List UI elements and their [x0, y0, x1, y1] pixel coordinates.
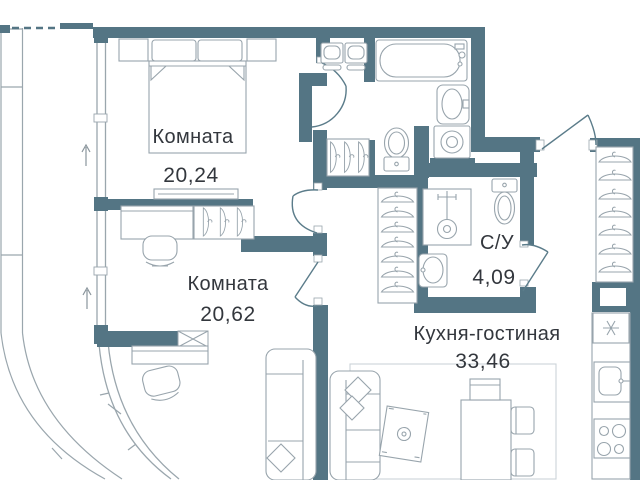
entrance-door-arc — [542, 115, 596, 149]
bathroom-door-arc — [312, 63, 346, 127]
vanity-sink-2 — [345, 43, 367, 70]
bathtub — [376, 40, 467, 81]
work-desk — [132, 346, 208, 364]
desk — [121, 206, 193, 239]
dining-table — [461, 379, 534, 480]
floor-plan-svg: Комната 20,24 Комната 20,62 С/У 4,09 Кух… — [0, 0, 640, 480]
bed-pillow-right — [198, 40, 242, 61]
kitchen-counter — [592, 313, 630, 479]
fridge — [593, 313, 629, 343]
hallway-wardrobe — [378, 188, 417, 303]
sofa-left — [266, 349, 316, 480]
bedroom2-label: Комната — [187, 273, 269, 295]
stove — [594, 419, 630, 458]
nightstand-left — [119, 39, 148, 61]
toilet-2 — [492, 179, 517, 224]
floor-plan-page: Комната 20,24 Комната 20,62 С/У 4,09 Кух… — [0, 0, 640, 480]
office-chair — [143, 236, 177, 266]
balcony-railing — [1, 28, 122, 479]
bedroom2-furniture — [121, 206, 254, 266]
nightstand-right — [247, 39, 276, 61]
vent-shaft — [178, 331, 208, 347]
vanity-sink-1 — [321, 43, 343, 70]
shower — [423, 189, 471, 245]
coffee-table — [379, 406, 428, 462]
wardrobe — [194, 206, 254, 239]
kitchen-area: 33,46 — [455, 350, 511, 373]
kitchen-sink — [594, 362, 630, 402]
su-label: С/У — [480, 232, 514, 254]
bathroom-fixtures — [321, 40, 470, 176]
office-chair-2 — [141, 364, 184, 404]
entrance-wardrobe — [596, 147, 633, 282]
sofa-right — [330, 371, 380, 480]
bedroom1-area: 20,24 — [163, 164, 219, 187]
su-sink — [419, 254, 447, 287]
bed-pillow-left — [152, 40, 196, 61]
hanger-nook — [327, 139, 369, 176]
bedroom1-label: Комната — [152, 126, 234, 148]
bedroom2-area: 20,62 — [200, 303, 256, 326]
kitchen-label: Кухня-гостиная — [413, 323, 560, 345]
washing-machine — [434, 126, 470, 158]
walls — [0, 23, 640, 480]
bathroom-sink — [437, 85, 469, 124]
balcony-exit-arrow — [82, 145, 91, 309]
su-area: 4,09 — [472, 266, 515, 289]
toilet-1 — [384, 128, 409, 171]
niche-opening — [600, 288, 626, 306]
